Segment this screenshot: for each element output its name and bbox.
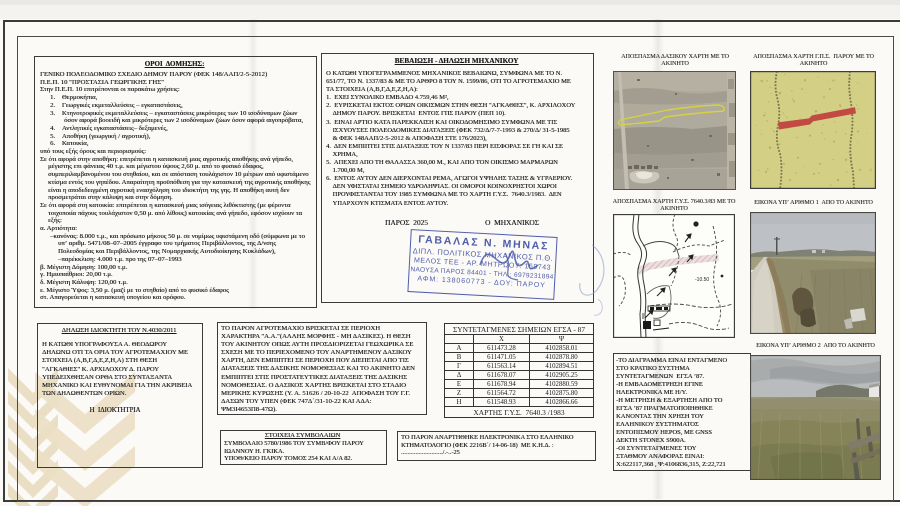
svg-text:-10.50: -10.50 [695,277,709,283]
